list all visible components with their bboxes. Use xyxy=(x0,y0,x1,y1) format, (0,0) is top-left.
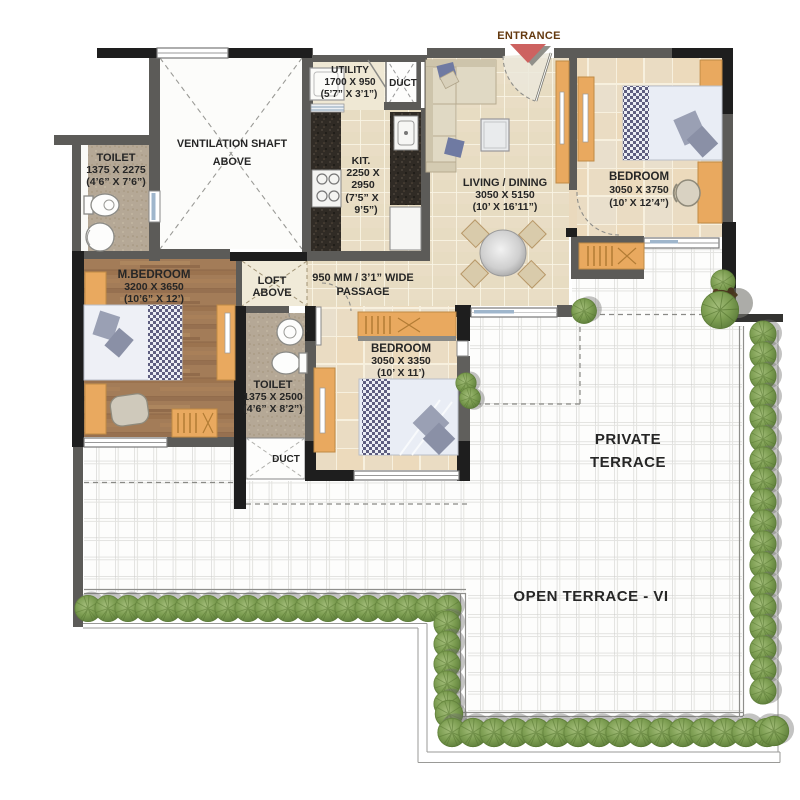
svg-text:(5’7” X 3’1”): (5’7” X 3’1”) xyxy=(321,89,378,100)
svg-text:BEDROOM: BEDROOM xyxy=(371,343,431,355)
svg-text:(10’6” X 12’): (10’6” X 12’) xyxy=(124,293,184,305)
svg-text:PASSAGE: PASSAGE xyxy=(337,286,390,298)
svg-text:M.BEDROOM: M.BEDROOM xyxy=(118,269,191,281)
svg-text:2250 X: 2250 X xyxy=(346,167,379,179)
svg-text:3050 X 3750: 3050 X 3750 xyxy=(609,184,669,196)
svg-text:LIVING / DINING: LIVING / DINING xyxy=(463,177,547,189)
svg-text:ABOVE: ABOVE xyxy=(252,287,291,299)
svg-text:TOILET: TOILET xyxy=(254,379,293,391)
svg-text:(7’5” X: (7’5” X xyxy=(345,192,378,204)
svg-text:KIT.: KIT. xyxy=(352,155,371,167)
svg-text:ENTRANCE: ENTRANCE xyxy=(497,30,561,42)
svg-text:(4’6” X 7’6”): (4’6” X 7’6”) xyxy=(86,176,146,188)
svg-text:3050 X 5150: 3050 X 5150 xyxy=(475,189,535,201)
svg-text:9’5”): 9’5”) xyxy=(354,204,377,216)
svg-text:ABOVE: ABOVE xyxy=(213,156,251,168)
svg-text:1375 X 2500: 1375 X 2500 xyxy=(243,391,303,403)
svg-text:1375 X 2275: 1375 X 2275 xyxy=(86,164,146,176)
svg-text:PRIVATE: PRIVATE xyxy=(595,431,661,448)
svg-text:UTILITY: UTILITY xyxy=(331,65,369,76)
svg-text:(10’ X 16’11”): (10’ X 16’11”) xyxy=(473,201,538,213)
svg-text:(10’ X 12’4”): (10’ X 12’4”) xyxy=(609,197,669,209)
svg-text:OPEN TERRACE - VI: OPEN TERRACE - VI xyxy=(513,588,668,605)
svg-text:LOFT: LOFT xyxy=(258,275,287,287)
svg-text:TOILET: TOILET xyxy=(97,152,136,164)
svg-text:(10’ X 11’): (10’ X 11’) xyxy=(377,367,425,379)
svg-text:2950: 2950 xyxy=(351,179,375,191)
svg-text:3050 X 3350: 3050 X 3350 xyxy=(371,355,431,367)
svg-text:DUCT: DUCT xyxy=(389,78,417,89)
svg-text:VENTILATION SHAFT: VENTILATION SHAFT xyxy=(177,138,288,150)
svg-text:BEDROOM: BEDROOM xyxy=(609,171,669,183)
svg-text:DUCT: DUCT xyxy=(272,454,300,465)
svg-text:950 MM / 3’1” WIDE: 950 MM / 3’1” WIDE xyxy=(312,272,413,284)
svg-text:TERRACE: TERRACE xyxy=(590,454,666,471)
svg-text:1700 X 950: 1700 X 950 xyxy=(324,77,376,88)
svg-text:(4’6” X 8’2”): (4’6” X 8’2”) xyxy=(243,403,303,415)
svg-text:3200 X 3650: 3200 X 3650 xyxy=(124,281,184,293)
